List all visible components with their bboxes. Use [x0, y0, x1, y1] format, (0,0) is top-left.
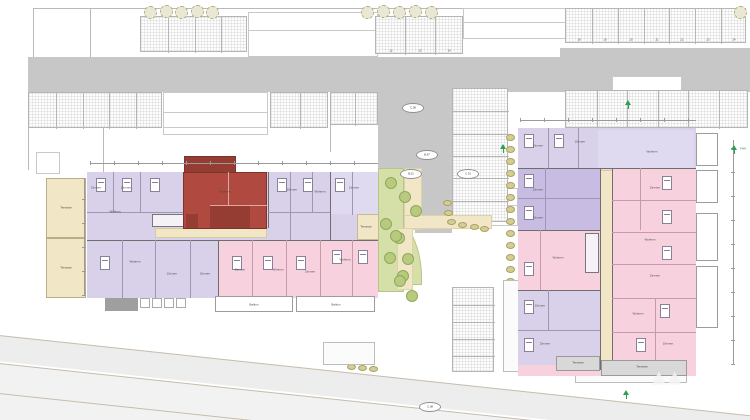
wall-line: [268, 172, 269, 228]
room-label: Zimmer: [287, 189, 297, 192]
wall-line: [545, 168, 546, 230]
stall-number: 14: [448, 50, 451, 53]
stall-number: 18: [577, 39, 580, 42]
planter-box: [176, 298, 186, 308]
room-label: Zimmer: [167, 273, 177, 276]
stall-number: ·: [611, 124, 612, 127]
room-label: Wohnen: [219, 191, 230, 194]
stall-divider: [56, 93, 57, 129]
stall-divider: [453, 201, 509, 202]
room-label: Zimmer: [349, 187, 359, 190]
tree-icon: [191, 5, 204, 18]
road-marker-label: C.08: [427, 406, 433, 409]
wall-line: [352, 240, 353, 298]
stall-number: ·: [458, 99, 459, 102]
hedge-shrub-icon: [506, 266, 515, 273]
stall-number: ·: [458, 363, 459, 366]
parking-stall-group: 121314: [375, 16, 463, 54]
wall-line: [612, 298, 696, 299]
stall-number: ·: [703, 124, 704, 127]
wall-line: [87, 240, 378, 241]
room-label: Wohnen: [552, 257, 563, 260]
room-label: Terrasse: [572, 362, 584, 365]
wall-line: [612, 332, 696, 333]
parking-stall-group: 18192021222324: [565, 8, 746, 43]
stall-divider: [644, 9, 645, 44]
room-label: Wohnen: [314, 191, 325, 194]
road-marker: B.01: [400, 169, 422, 179]
tree-icon: [361, 6, 374, 19]
wall-line: [286, 240, 287, 298]
tree-icon: [206, 6, 219, 19]
balcony: [696, 266, 718, 328]
stall-number: ·: [458, 143, 459, 146]
boundary-line: [90, 8, 91, 57]
tree-icon: [175, 6, 188, 19]
plot-line: [163, 127, 268, 128]
unit-core-block: [186, 214, 198, 228]
unit-core-block: [210, 205, 250, 228]
parking-stall-group: ······: [565, 90, 748, 128]
boundary-line: [103, 128, 104, 172]
stall-divider: [453, 339, 495, 340]
utility-box: [105, 298, 138, 311]
road-surface: [28, 57, 570, 92]
wall-line: [122, 240, 123, 298]
wall-line: [612, 168, 613, 370]
shrub-icon: [458, 222, 467, 228]
room-label: Zimmer: [200, 273, 210, 276]
tree-icon: [380, 218, 392, 230]
room-label: Wohnen: [646, 151, 657, 154]
plot-line: [248, 30, 378, 31]
wall-line: [578, 128, 579, 168]
room-label: Zimmer: [650, 187, 660, 190]
hedge-shrub-icon: [506, 134, 515, 141]
tree-icon: [160, 5, 173, 18]
hedge-shrub-icon: [506, 182, 515, 189]
bed-icon: [303, 178, 313, 192]
stall-number: ·: [314, 124, 315, 127]
stall-divider: [453, 111, 509, 112]
bed-icon: [636, 338, 646, 352]
parking-stall-group: ··: [270, 92, 328, 128]
wall-line: [518, 198, 600, 199]
wall-line: [612, 232, 696, 233]
tree-icon: [399, 191, 411, 203]
stall-number: ·: [458, 312, 459, 315]
bed-icon: [524, 174, 534, 188]
road-marker-label: C.06: [410, 107, 416, 110]
balcony: [696, 213, 718, 261]
room-label: Wohnen: [339, 259, 350, 262]
room-label: Zimmer: [535, 305, 545, 308]
tree-icon: [734, 6, 747, 19]
stall-number: ·: [458, 346, 459, 349]
room-label: Wohnen: [109, 211, 120, 214]
plot-line: [463, 22, 572, 23]
plot-outline: [248, 12, 378, 57]
shrub-icon: [369, 366, 378, 372]
landscape-marker-stem: [503, 149, 504, 153]
wall-line: [330, 172, 331, 240]
stall-divider: [405, 17, 406, 55]
stall-number: 23: [707, 39, 710, 42]
hedge-shrub-icon: [506, 230, 515, 237]
wall-line: [320, 240, 321, 298]
stall-divider: [627, 91, 628, 129]
bed-icon: [358, 250, 368, 264]
planter-box: [152, 298, 162, 308]
balcony-label: Balkon: [249, 304, 258, 307]
stall-number: ·: [458, 166, 459, 169]
balcony: [696, 133, 718, 166]
tree-icon: [390, 230, 402, 242]
stairwell: [585, 233, 599, 273]
bed-icon: [335, 178, 345, 192]
bed-icon: [662, 210, 672, 224]
tree-icon: [402, 253, 414, 265]
stall-number: ·: [234, 48, 235, 51]
paved-area: [503, 280, 519, 372]
road-marker-label: C.01: [465, 173, 471, 176]
stall-number: ·: [458, 295, 459, 298]
balcony: [696, 170, 718, 203]
stall-number: ·: [367, 121, 368, 124]
stall-number: ·: [581, 124, 582, 127]
road-marker: C.01: [457, 169, 479, 179]
wall-line: [548, 128, 549, 168]
room-label: Zimmer: [533, 145, 543, 148]
bed-icon: [96, 178, 106, 192]
stall-divider: [109, 93, 110, 129]
stall-divider: [719, 91, 720, 129]
wall-line: [640, 168, 641, 230]
wall-line: [548, 290, 549, 330]
stall-divider: [669, 9, 670, 44]
room-label: Zimmer: [121, 187, 131, 190]
stall-divider: [168, 17, 169, 53]
dimension-ticks: [520, 118, 696, 122]
tree-icon: [410, 205, 422, 217]
stall-number: ·: [672, 124, 673, 127]
stall-number: ·: [458, 210, 459, 213]
stall-number: ·: [181, 48, 182, 51]
wall-line: [612, 200, 696, 201]
landscape-marker-stem: [734, 150, 735, 154]
room-label: Wohnen: [129, 261, 140, 264]
tree-icon: [144, 6, 157, 19]
shrub-icon: [480, 226, 489, 232]
room-label: Zimmer: [235, 269, 245, 272]
stall-number: ·: [733, 124, 734, 127]
stall-divider: [435, 17, 436, 55]
stall-divider: [695, 9, 696, 44]
hedge-shrub-icon: [506, 242, 515, 249]
stall-number: ·: [458, 329, 459, 332]
stall-divider: [453, 305, 495, 306]
wall-line: [655, 298, 656, 363]
stall-divider: [453, 356, 495, 357]
dimension-ticks: [731, 140, 735, 365]
room-label: Wohnen: [632, 313, 643, 316]
dimension-ticks: [82, 178, 86, 296]
terrace-label: Terrasse: [60, 207, 72, 210]
road-marker: C.06: [402, 103, 424, 113]
stall-number: 12: [389, 50, 392, 53]
tree-icon: [393, 6, 406, 19]
plot-outline: [463, 8, 572, 39]
wall-line: [155, 240, 156, 298]
site-plan-canvas: ····12131418192021222324················…: [0, 0, 750, 420]
bed-icon: [662, 246, 672, 260]
plot-outline: [36, 152, 60, 174]
dimension-ticks: [90, 161, 378, 165]
balcony: Balkon: [296, 296, 375, 312]
wall-line: [113, 172, 114, 212]
room-label: Zimmer: [533, 217, 543, 220]
paved-area: [323, 342, 375, 365]
bed-icon: [150, 178, 160, 192]
hedge-shrub-icon: [506, 254, 515, 261]
shrub-icon: [447, 219, 456, 225]
balcony-label: Balkon: [331, 304, 340, 307]
hedge-shrub-icon: [506, 170, 515, 177]
stall-divider: [300, 93, 301, 129]
stall-divider: [453, 322, 495, 323]
apartment-unit: [598, 130, 694, 168]
stall-number: ·: [458, 121, 459, 124]
stall-divider: [658, 91, 659, 129]
wall-line: [252, 240, 253, 298]
wall-line: [87, 212, 183, 213]
stall-number: ·: [285, 124, 286, 127]
room-label: Terrasse: [360, 226, 372, 229]
bed-icon: [122, 178, 132, 192]
wall-line: [190, 240, 191, 298]
stall-number: 24: [733, 39, 736, 42]
tree-icon: [425, 6, 438, 19]
tree-icon: [394, 275, 406, 287]
bed-icon: [100, 256, 110, 270]
shrub-icon: [443, 200, 452, 206]
tree-icon: [377, 5, 390, 18]
wall-line: [352, 172, 353, 215]
stall-number: ·: [69, 124, 70, 127]
room-label: Zimmer: [650, 275, 660, 278]
stall-number: ·: [343, 121, 344, 124]
shrub-icon: [444, 210, 453, 216]
terrace-label: Terrasse: [60, 267, 72, 270]
wall-line: [218, 240, 219, 298]
bed-icon: [524, 262, 534, 276]
room-label: Zimmer: [91, 187, 101, 190]
stall-number: ·: [122, 124, 123, 127]
landscape-marker-label: PMR: [740, 148, 746, 151]
stall-divider: [195, 17, 196, 53]
unit-partition: [210, 205, 267, 206]
wall-line: [268, 212, 330, 213]
bed-icon: [332, 250, 342, 264]
stall-number: ·: [642, 124, 643, 127]
hedge-shrub-icon: [506, 206, 515, 213]
landscape-marker-stem: [628, 105, 629, 109]
planter-box: [140, 298, 150, 308]
stall-divider: [355, 93, 356, 126]
bed-icon: [277, 178, 287, 192]
room-label: Zimmer: [663, 343, 673, 346]
stall-divider: [453, 134, 509, 135]
bed-icon: [524, 300, 534, 314]
stall-number: 21: [655, 39, 658, 42]
shrub-icon: [470, 224, 479, 230]
road-marker: B.67: [416, 150, 438, 160]
corridor: [155, 228, 267, 238]
tree-icon: [406, 290, 418, 302]
room-label: Wohnen: [644, 239, 655, 242]
stall-number: 13: [418, 50, 421, 53]
stall-divider: [721, 9, 722, 44]
stall-number: ·: [96, 124, 97, 127]
hedge-shrub-icon: [506, 158, 515, 165]
stall-number: ·: [458, 188, 459, 191]
tree-icon: [385, 177, 397, 189]
parking-stall-group: ·····: [452, 287, 494, 372]
hedge-shrub-icon: [506, 218, 515, 225]
bed-icon: [554, 134, 564, 148]
road-marker-label: B.67: [424, 154, 430, 157]
wall-line: [290, 172, 291, 240]
tree-icon: [409, 5, 422, 18]
watermark: ▲▲: [648, 364, 680, 390]
balcony: Balkon: [215, 296, 293, 312]
bed-icon: [662, 176, 672, 190]
bed-icon: [660, 304, 670, 318]
stall-divider: [136, 93, 137, 129]
hedge-shrub-icon: [506, 146, 515, 153]
road-marker: C.08: [419, 402, 441, 412]
unit-partition: [228, 172, 229, 205]
parking-stall-group: ·····: [28, 92, 162, 128]
wall-line: [518, 330, 600, 331]
room-label: Terrasse: [636, 366, 648, 369]
stall-divider: [618, 9, 619, 44]
wall-line: [518, 230, 600, 231]
stall-number: ·: [149, 124, 150, 127]
stall-number: 19: [603, 39, 606, 42]
planter-box: [164, 298, 174, 308]
wall-line: [612, 264, 696, 265]
stall-divider: [592, 9, 593, 44]
landscape-marker-stem: [626, 395, 627, 399]
tree-icon: [384, 252, 396, 264]
wall-line: [518, 290, 600, 291]
stall-divider: [688, 91, 689, 129]
room-label: Zimmer: [575, 141, 585, 144]
stall-divider: [453, 156, 509, 157]
wall-line: [600, 168, 601, 370]
plot-outline: [163, 92, 268, 135]
stall-number: 20: [629, 39, 632, 42]
bed-icon: [524, 338, 534, 352]
terrace-area: Terrasse: [46, 178, 86, 238]
bed-icon: [296, 256, 306, 270]
shrub-icon: [358, 365, 367, 371]
stall-number: ·: [207, 48, 208, 51]
stall-divider: [597, 91, 598, 129]
plot-line: [163, 112, 268, 113]
room-label: Zimmer: [540, 343, 550, 346]
terrace-area: Terrasse: [46, 238, 86, 298]
stall-number: 22: [681, 39, 684, 42]
stall-divider: [453, 178, 509, 179]
hedge-shrub-icon: [506, 194, 515, 201]
stall-number: ·: [42, 124, 43, 127]
parking-stall-group: ····: [140, 16, 247, 52]
parking-stall-group: ··: [330, 92, 378, 125]
room-label: Wohnen: [272, 269, 283, 272]
stall-number: ·: [154, 48, 155, 51]
road-marker-label: B.01: [408, 173, 414, 176]
wall-line: [540, 230, 541, 290]
stall-divider: [83, 93, 84, 129]
room-label: Zimmer: [305, 271, 315, 274]
stall-divider: [221, 17, 222, 53]
wall-line: [140, 172, 141, 212]
room-label: Zimmer: [533, 189, 543, 192]
boundary-line: [33, 8, 34, 57]
parking-stall-group: ······: [452, 88, 508, 222]
